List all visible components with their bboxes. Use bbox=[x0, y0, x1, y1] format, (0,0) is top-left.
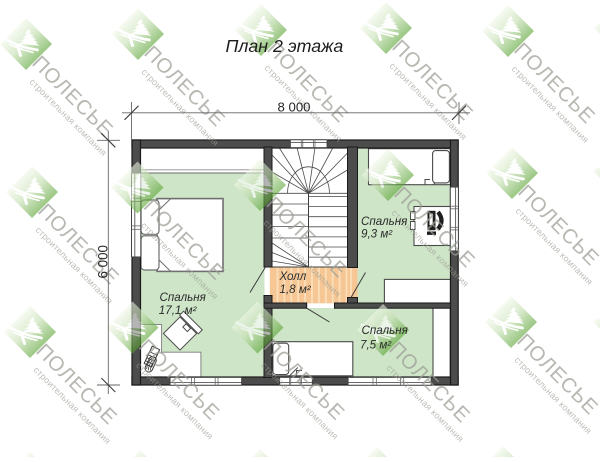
svg-text:17,1 м²: 17,1 м² bbox=[159, 304, 198, 317]
svg-text:6 000: 6 000 bbox=[96, 245, 111, 279]
svg-text:План 2 этажа: План 2 этажа bbox=[226, 36, 344, 56]
svg-text:1,8 м²: 1,8 м² bbox=[280, 283, 312, 296]
svg-text:Спальня: Спальня bbox=[362, 324, 408, 337]
svg-text:7,5 м²: 7,5 м² bbox=[360, 338, 392, 351]
svg-text:8 000: 8 000 bbox=[278, 99, 311, 114]
svg-text:9,3 м²: 9,3 м² bbox=[361, 227, 393, 240]
svg-text:Холл: Холл bbox=[279, 270, 307, 283]
svg-text:Спальня: Спальня bbox=[160, 291, 206, 304]
svg-text:Спальня: Спальня bbox=[361, 215, 407, 228]
